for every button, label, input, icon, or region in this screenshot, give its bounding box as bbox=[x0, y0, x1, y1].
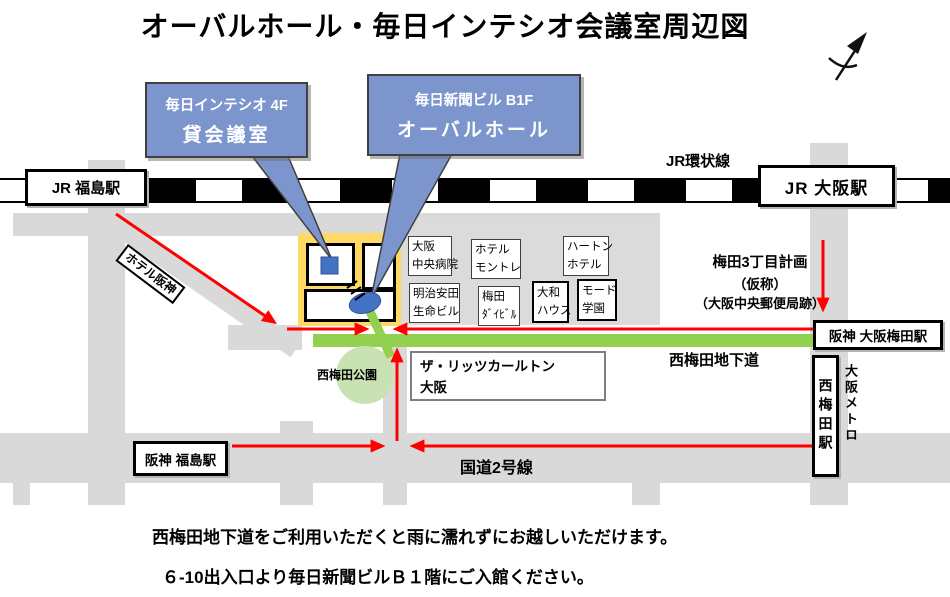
area-map: オーバルホール・毎日インテシオ会議室周辺図 bbox=[0, 0, 950, 597]
building-label-line: 明治安田 bbox=[413, 285, 456, 303]
building-label-line: 大和 bbox=[537, 284, 564, 302]
road-stub-right bbox=[632, 480, 660, 505]
building-ritz-carlton: ザ・リッツカールトン 大阪 bbox=[410, 351, 606, 401]
building-label-line: ホテル bbox=[567, 256, 605, 274]
building-label-line: ﾀﾞｲﾋﾞﾙ bbox=[482, 306, 516, 324]
label-osaka-metro: 大阪メトロ bbox=[841, 364, 860, 486]
building-umeda-daibiru: 梅田 ﾀﾞｲﾋﾞﾙ bbox=[478, 286, 520, 326]
building-label-line: 大阪 bbox=[420, 377, 596, 398]
note-entrance: ６-10出入口より毎日新聞ビルＢ１階にご入館ください。 bbox=[162, 563, 594, 588]
building-label-line: 学園 bbox=[582, 300, 612, 318]
callout-intesio: 毎日インテシオ 4F 貸会議室 bbox=[145, 82, 308, 158]
road-stub-left bbox=[13, 433, 30, 505]
mainichi-building-outline bbox=[304, 289, 396, 322]
umeda-3-plan-sub1: （仮称） bbox=[655, 278, 865, 292]
callout-intesio-line2: 貸会議室 bbox=[147, 120, 306, 147]
page-title: オーバルホール・毎日インテシオ会議室周辺図 bbox=[0, 5, 890, 45]
umeda-3-plan-sub2: （大阪中央郵便局跡） bbox=[655, 297, 865, 311]
intesio-building-outline bbox=[306, 243, 355, 286]
building-osaka-chuo-hospital: 大阪 中央病院 bbox=[408, 236, 452, 276]
building-daiwa-house: 大和 ハウス bbox=[532, 281, 569, 323]
building-label-line: 大阪 bbox=[412, 238, 448, 256]
building-hotel-monterey: ホテル モントレ bbox=[471, 239, 521, 279]
label-umeda-3-plan: 梅田3丁目計画 （仮称） （大阪中央郵便局跡） bbox=[655, 256, 865, 311]
station-hanshin-osaka-umeda: 阪神 大阪梅田駅 bbox=[813, 320, 943, 350]
building-label-line: モントレ bbox=[475, 259, 517, 277]
callout-intesio-line1: 毎日インテシオ 4F bbox=[147, 94, 306, 115]
building-label-line: ハートン bbox=[567, 238, 605, 256]
building-meiji-yasuda: 明治安田 生命ビル bbox=[409, 283, 460, 323]
callout-oval-line2: オーバルホール bbox=[369, 115, 579, 142]
building-label-line: ザ・リッツカールトン bbox=[420, 356, 596, 377]
building-label-line: 生命ビル bbox=[413, 303, 456, 321]
building-label-line: 中央病院 bbox=[412, 256, 448, 274]
callout-oval-line1: 毎日新聞ビル B1F bbox=[369, 89, 579, 110]
label-route-2: 国道2号線 bbox=[460, 454, 533, 478]
station-jr-fukushima: JR 福島駅 bbox=[25, 169, 147, 206]
building-label-line: ハウス bbox=[537, 302, 564, 320]
umeda-3-plan-title: 梅田3丁目計画 bbox=[712, 255, 807, 271]
road-cross-vertical bbox=[280, 421, 313, 505]
label-park: 西梅田公園 bbox=[317, 366, 377, 383]
station-jr-osaka: JR 大阪駅 bbox=[758, 165, 895, 207]
callout-oval-hall: 毎日新聞ビル B1F オーバルホール bbox=[367, 74, 581, 156]
north-building-outline bbox=[362, 243, 396, 290]
note-underpass: 西梅田地下道をご利用いただくと雨に濡れずにお越しいただけます。 bbox=[152, 523, 677, 548]
label-jr-loop-line: JR環状線 bbox=[666, 150, 730, 171]
station-hanshin-fukushima: 阪神 福島駅 bbox=[133, 441, 228, 476]
underground-passage-band bbox=[313, 334, 818, 347]
building-label-line: 梅田 bbox=[482, 288, 516, 306]
building-label-line: モード bbox=[582, 282, 612, 300]
label-underground-passage: 西梅田地下道 bbox=[669, 349, 759, 370]
building-hearton-hotel: ハートン ホテル bbox=[563, 236, 609, 276]
building-mode-gakuen: モード 学園 bbox=[577, 279, 617, 321]
station-nishi-umeda: 西梅田駅 bbox=[812, 355, 839, 477]
building-label-line: ホテル bbox=[475, 241, 517, 259]
